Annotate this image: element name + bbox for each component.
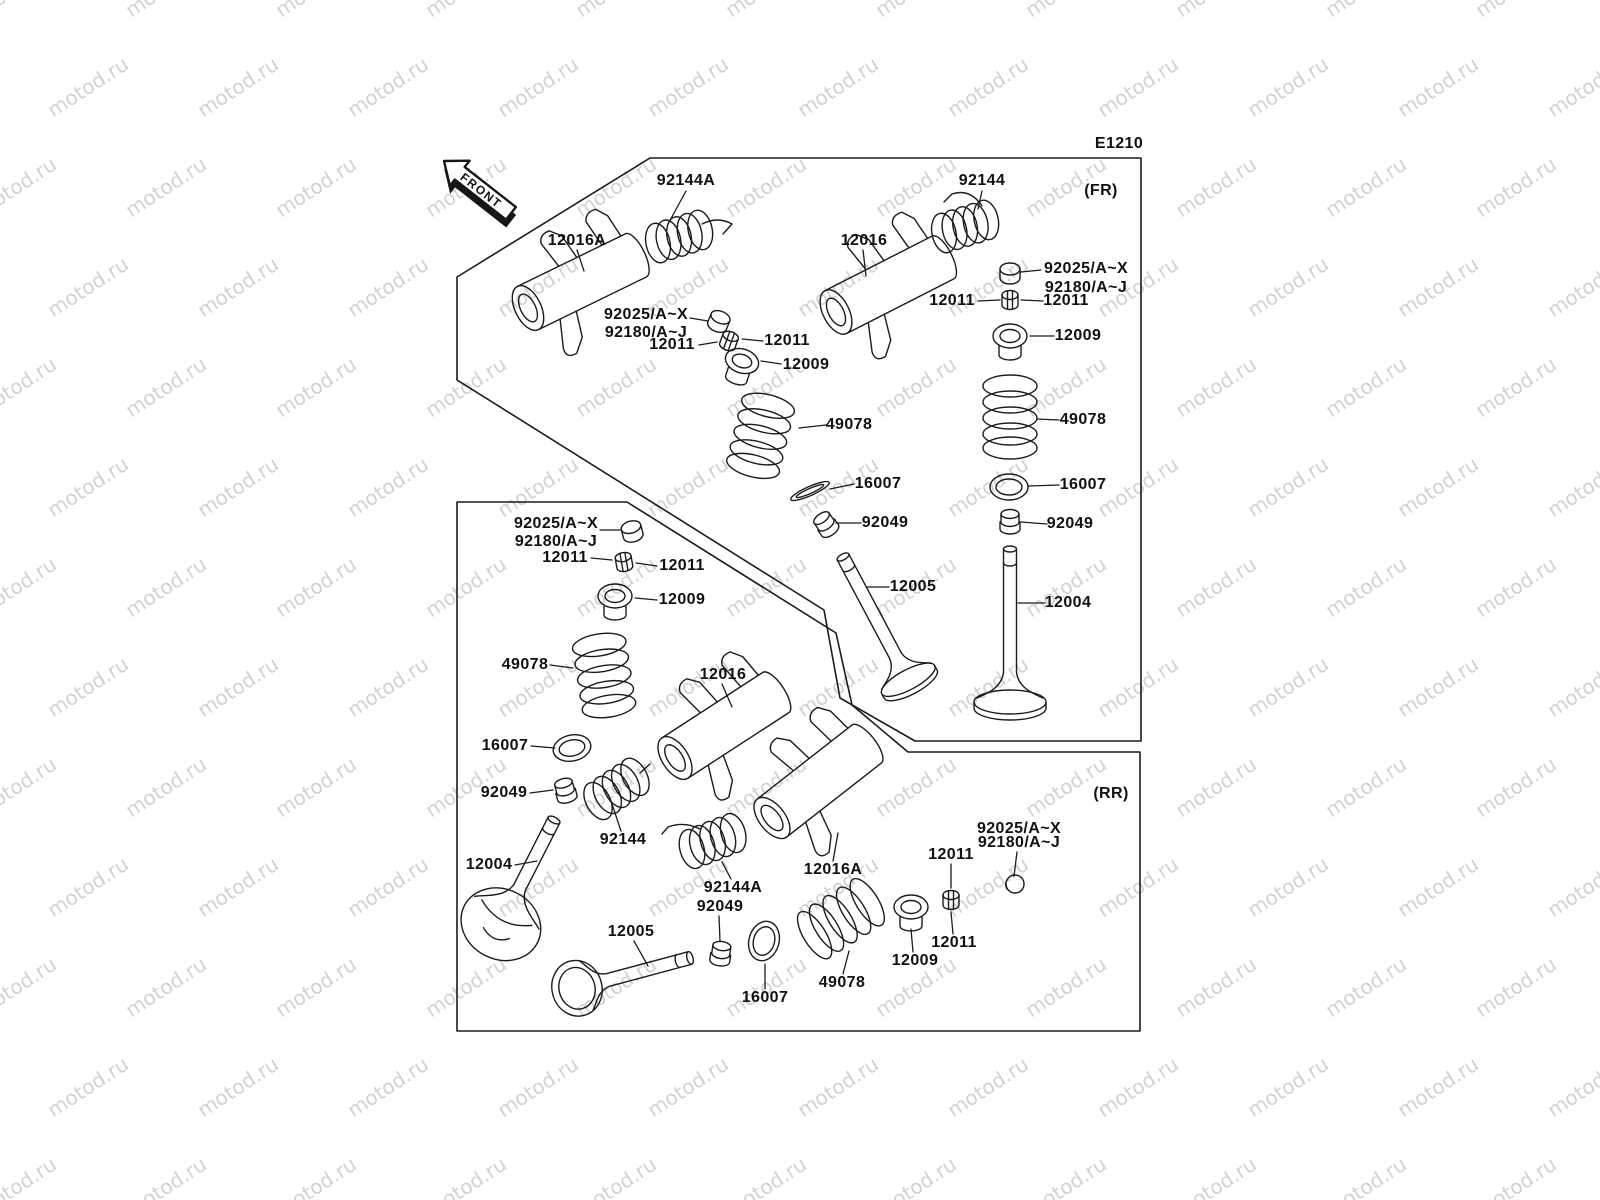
label-12011-fr-mid-a: 12011 bbox=[649, 336, 695, 354]
label-49078-rr-mid: 49078 bbox=[819, 974, 866, 992]
label-12011-fr-mid-b: 12011 bbox=[764, 332, 810, 350]
label-49078-fr-mid: 49078 bbox=[826, 416, 873, 434]
label-92049-rr-left: 92049 bbox=[481, 784, 528, 802]
label-92049-rr-mid: 92049 bbox=[697, 898, 744, 916]
label-16007-fr-right: 16007 bbox=[1060, 476, 1107, 494]
label-12009-fr-mid: 12009 bbox=[783, 356, 830, 374]
label-92049-fr-mid: 92049 bbox=[862, 514, 909, 532]
label-12016-fr: 12016 bbox=[841, 232, 888, 250]
label-12011-rr-left-b: 12011 bbox=[659, 557, 705, 575]
label-12005-rr: 12005 bbox=[608, 923, 655, 941]
label-16007-rr-mid: 16007 bbox=[742, 989, 789, 1007]
label-16007-fr-mid: 16007 bbox=[855, 475, 902, 493]
label-49078-fr-right: 49078 bbox=[1060, 411, 1107, 429]
label-12009-fr-right: 12009 bbox=[1055, 327, 1102, 345]
label-92144-rr: 92144 bbox=[600, 831, 647, 849]
label-92144a-rr: 92144A bbox=[704, 879, 762, 897]
label-92144a-fr: 92144A bbox=[657, 172, 715, 190]
part-labels-layer: E1210(FR)(RR)92144A9214412016A1201692025… bbox=[0, 0, 1600, 1200]
label-92180-rr-right: 92180/A~J bbox=[978, 834, 1060, 852]
label-16007-rr-left: 16007 bbox=[482, 737, 529, 755]
parts-diagram-page: motod.rumotod.rumotod.rumotod.rumotod.ru… bbox=[0, 0, 1600, 1200]
label-12009-rr-left: 12009 bbox=[659, 591, 706, 609]
label-12011-rr-right-a: 12011 bbox=[928, 846, 974, 864]
label-12011-rr-right-b: 12011 bbox=[931, 934, 977, 952]
label-92025-fr-right: 92025/A~X bbox=[1044, 260, 1128, 278]
label-12004-fr: 12004 bbox=[1045, 594, 1092, 612]
label-92025-rr-left: 92025/A~X bbox=[514, 515, 598, 533]
label-92144-fr: 92144 bbox=[959, 172, 1006, 190]
label-12016a-fr: 12016A bbox=[548, 232, 606, 250]
fr-section-tag: (FR) bbox=[1084, 182, 1118, 200]
label-12011-fr-right-a: 12011 bbox=[929, 292, 975, 310]
rr-section-tag: (RR) bbox=[1093, 785, 1128, 803]
label-12004-rr: 12004 bbox=[466, 856, 513, 874]
label-12009-rr-right: 12009 bbox=[892, 952, 939, 970]
label-12016-rr: 12016 bbox=[700, 666, 747, 684]
label-49078-rr-left: 49078 bbox=[502, 656, 549, 674]
label-12011-rr-left-a: 12011 bbox=[542, 549, 588, 567]
label-92049-fr-right: 92049 bbox=[1047, 515, 1094, 533]
label-12016a-rr: 12016A bbox=[804, 861, 862, 879]
label-12005-fr: 12005 bbox=[890, 578, 937, 596]
label-92025-fr-mid: 92025/A~X bbox=[604, 306, 688, 324]
label-12011-fr-right-b: 12011 bbox=[1043, 292, 1089, 310]
drawing-code: E1210 bbox=[1095, 135, 1143, 153]
